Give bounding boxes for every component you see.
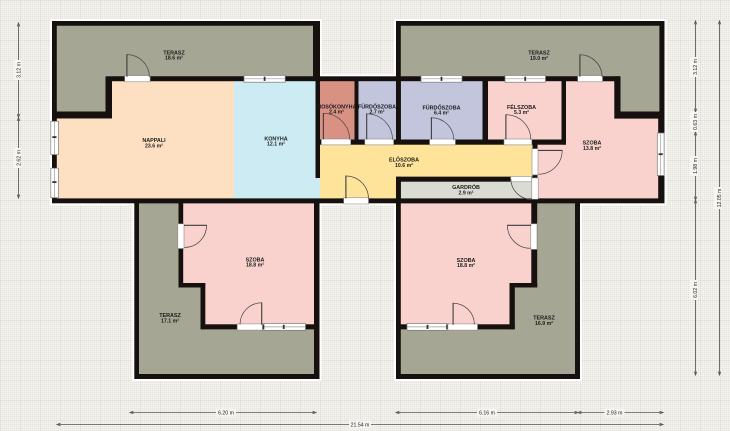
svg-text:2.7 m²: 2.7 m² xyxy=(370,110,385,116)
svg-text:19.0 m²: 19.0 m² xyxy=(530,56,548,62)
svg-text:13.8 m²: 13.8 m² xyxy=(583,146,601,152)
svg-text:6.16 m: 6.16 m xyxy=(479,411,495,417)
svg-text:6.4 m²: 6.4 m² xyxy=(434,110,449,116)
svg-text:10.6 m²: 10.6 m² xyxy=(395,163,413,169)
svg-text:18.8 m²: 18.8 m² xyxy=(457,263,475,269)
svg-text:12.1 m²: 12.1 m² xyxy=(267,141,285,147)
svg-text:6.02 m: 6.02 m xyxy=(693,282,699,298)
svg-text:1.98 m: 1.98 m xyxy=(693,158,699,174)
svg-text:0.63 m: 0.63 m xyxy=(693,114,699,130)
svg-text:16.9 m²: 16.9 m² xyxy=(535,321,553,327)
svg-text:12.05 m: 12.05 m xyxy=(717,189,723,208)
svg-text:23.6 m²: 23.6 m² xyxy=(145,143,163,149)
svg-text:2.4 m²: 2.4 m² xyxy=(329,110,344,116)
svg-text:6.20 m: 6.20 m xyxy=(218,411,234,417)
svg-text:2.93 m: 2.93 m xyxy=(607,411,623,417)
svg-text:2.9 m²: 2.9 m² xyxy=(459,190,474,196)
svg-text:5.3 m²: 5.3 m² xyxy=(514,110,529,116)
svg-text:3.12 m: 3.12 m xyxy=(17,62,23,78)
svg-text:3.12 m: 3.12 m xyxy=(693,59,699,75)
svg-text:2.62 m: 2.62 m xyxy=(17,150,23,166)
svg-text:18.8 m²: 18.8 m² xyxy=(246,263,264,269)
svg-text:18.6 m²: 18.6 m² xyxy=(165,56,183,62)
svg-text:17.1 m²: 17.1 m² xyxy=(161,318,179,324)
svg-text:21.54 m: 21.54 m xyxy=(351,423,370,429)
